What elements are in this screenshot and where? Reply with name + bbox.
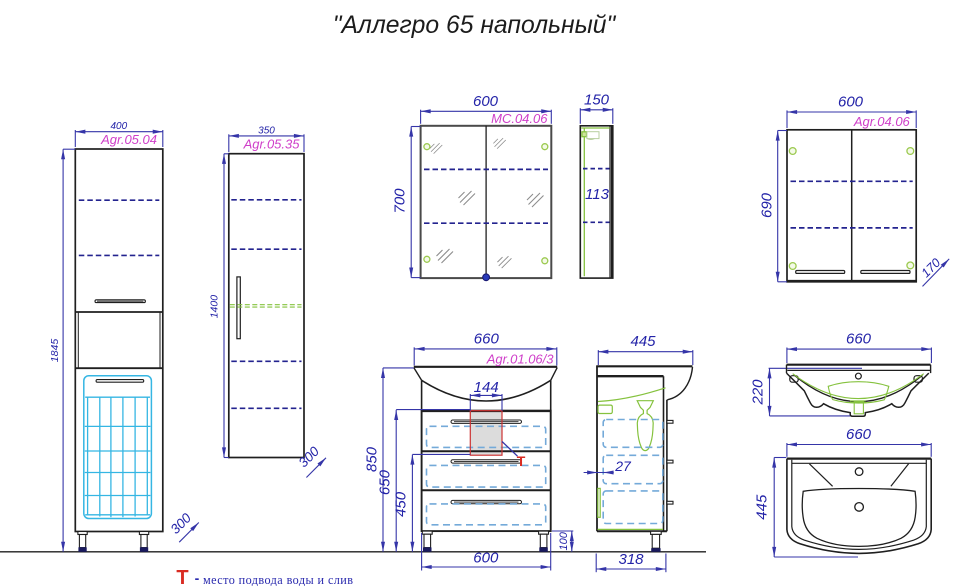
svg-text:113: 113 xyxy=(585,186,610,203)
svg-text:600: 600 xyxy=(473,549,499,566)
svg-text:220: 220 xyxy=(749,379,766,406)
svg-text:Т: Т xyxy=(517,453,526,469)
svg-text:660: 660 xyxy=(846,426,872,443)
svg-text:Agr.05.04: Agr.05.04 xyxy=(100,132,157,147)
svg-text:445: 445 xyxy=(754,494,771,520)
svg-text:100: 100 xyxy=(558,531,570,550)
svg-text:MC.04.06: MC.04.06 xyxy=(491,111,548,126)
svg-text:445: 445 xyxy=(630,333,656,350)
svg-text:"Аллегро 65 напольный": "Аллегро 65 напольный" xyxy=(333,12,617,39)
svg-text:450: 450 xyxy=(393,491,410,517)
svg-text:318: 318 xyxy=(618,551,644,568)
svg-text:27: 27 xyxy=(614,458,632,474)
svg-text:-: - xyxy=(195,570,200,586)
svg-text:150: 150 xyxy=(584,92,610,109)
svg-text:690: 690 xyxy=(758,192,775,218)
svg-text:144: 144 xyxy=(474,379,499,396)
svg-text:Agr.05.35: Agr.05.35 xyxy=(243,136,301,151)
svg-text:660: 660 xyxy=(474,330,500,347)
svg-text:Т: Т xyxy=(176,567,188,586)
svg-text:1400: 1400 xyxy=(209,295,221,319)
svg-text:1845: 1845 xyxy=(49,339,61,363)
svg-text:400: 400 xyxy=(110,121,127,132)
svg-text:600: 600 xyxy=(838,94,864,111)
svg-text:Agr.04.06: Agr.04.06 xyxy=(853,114,911,129)
svg-text:700: 700 xyxy=(391,188,408,214)
svg-text:850: 850 xyxy=(363,446,380,472)
svg-text:660: 660 xyxy=(846,331,872,348)
svg-text:Agr.01.06/3: Agr.01.06/3 xyxy=(486,351,555,366)
svg-text:место подвода воды и слив: место подвода воды и слив xyxy=(203,573,353,586)
svg-text:600: 600 xyxy=(473,93,499,110)
svg-text:650: 650 xyxy=(377,469,394,495)
svg-text:350: 350 xyxy=(258,125,275,136)
